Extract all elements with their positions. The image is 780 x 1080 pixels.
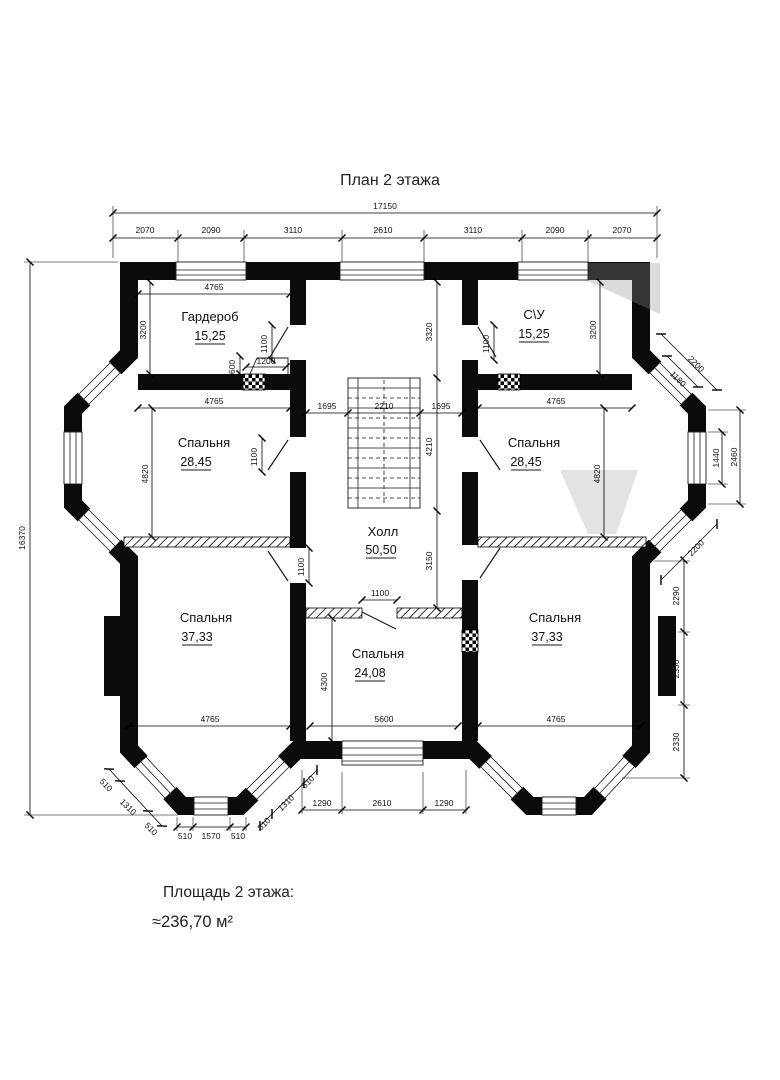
page-title: План 2 этажа — [340, 172, 440, 189]
dim-label: 4300 — [319, 672, 329, 691]
dim-label: 1310 — [118, 797, 139, 818]
dim-label: 2090 — [202, 225, 221, 235]
dim-label: 2290 — [671, 586, 681, 605]
dim-label: 1100 — [481, 335, 491, 354]
dim-label: 4765 — [205, 396, 224, 406]
dim-label: 1100 — [249, 448, 259, 467]
footer-area-value: ≈236,70 м² — [152, 913, 233, 931]
room-name: Спальня — [180, 610, 232, 625]
dim-label: 1290 — [435, 798, 454, 808]
room-area: 24,08 — [354, 666, 385, 680]
dim-label: 1290 — [313, 798, 332, 808]
footer: Площадь 2 этажа: ≈236,70 м² — [152, 884, 294, 931]
dim-label: 4765 — [547, 396, 566, 406]
dim-label: 3110 — [464, 225, 483, 235]
dim-label: 2210 — [375, 401, 394, 411]
room-area: 50,50 — [365, 543, 396, 557]
room-name: Холл — [368, 524, 399, 539]
dim-label: 600 — [227, 360, 237, 374]
dim-label: 4765 — [547, 714, 566, 724]
dim-label: 1100 — [259, 335, 269, 354]
dim-label: 510 — [143, 820, 160, 837]
window-br-corner-bay-face — [542, 797, 576, 815]
room-area: 37,33 — [531, 630, 562, 644]
dim-label: 2070 — [613, 225, 632, 235]
dim-top-chain: 2070 2090 3110 2610 3110 2090 2070 — [113, 225, 657, 238]
dim-label: 510 — [231, 831, 245, 841]
dim-label: 510 — [178, 831, 192, 841]
dim-label: 510 — [255, 815, 272, 832]
dim-label: 3320 — [424, 322, 434, 341]
room-name: Спальня — [352, 646, 404, 661]
room-name: С\У — [523, 307, 545, 322]
room-name: Спальня — [178, 435, 230, 450]
window-bottom-center — [342, 741, 423, 765]
dim-label: 2070 — [136, 225, 155, 235]
floor-plan-page: План 2 этажа — [0, 0, 780, 1080]
dim-label: 510 — [98, 776, 115, 793]
room-area: 28,45 — [180, 455, 211, 469]
room-name: Гардероб — [181, 309, 238, 324]
dim-label: 1695 — [318, 401, 337, 411]
dim-label: 1100 — [371, 588, 390, 598]
dim-label: 2090 — [546, 225, 565, 235]
window-top-center — [340, 262, 424, 280]
dim-label: 4765 — [205, 282, 224, 292]
window-right-bay-face — [688, 432, 706, 484]
dim-label: 1200 — [257, 356, 276, 366]
dim-label: 1310 — [276, 792, 297, 813]
dim-label: 1100 — [296, 558, 306, 577]
dim-label: 1570 — [202, 831, 221, 841]
dim-label: 3200 — [138, 320, 148, 339]
dim-bottom-chain: 1290 2610 1290 — [302, 770, 466, 814]
room-name: Спальня — [508, 435, 560, 450]
window-top-right — [518, 262, 588, 280]
dim-label: 4820 — [140, 464, 150, 483]
room-area: 15,25 — [194, 329, 225, 343]
dim-label: 17150 — [373, 201, 397, 211]
dim-label: 2610 — [374, 225, 393, 235]
dim-label: 2460 — [729, 447, 739, 466]
room-area: 28,45 — [510, 455, 541, 469]
dim-label: 4765 — [201, 714, 220, 724]
dim-label: 16370 — [17, 526, 27, 550]
room-area: 15,25 — [518, 327, 549, 341]
dim-label: 3150 — [424, 551, 434, 570]
window-bl-corner-bay-face — [194, 797, 228, 815]
dim-label: 3110 — [284, 225, 303, 235]
dim-label: 1440 — [711, 448, 721, 467]
dim-label: 2610 — [373, 798, 392, 808]
dim-label: 2330 — [671, 732, 681, 751]
dim-label: 5600 — [375, 714, 394, 724]
dim-label: 3200 — [588, 320, 598, 339]
footer-label: Площадь 2 этажа: — [163, 884, 294, 901]
dim-label: 2200 — [686, 354, 707, 375]
window-left-bay-face — [64, 432, 82, 484]
dim-label: 4820 — [592, 464, 602, 483]
dim-label: 4210 — [424, 437, 434, 456]
dim-corner-bay-face: 510 1570 510 — [177, 817, 246, 841]
floor-plan-drawing: План 2 этажа — [0, 0, 780, 1080]
dim-label: 2200 — [686, 537, 707, 558]
window-top-left — [176, 262, 246, 280]
room-area: 37,33 — [181, 630, 212, 644]
dim-label: 2330 — [671, 659, 681, 678]
dim-label: 1695 — [432, 401, 451, 411]
room-name: Спальня — [529, 610, 581, 625]
